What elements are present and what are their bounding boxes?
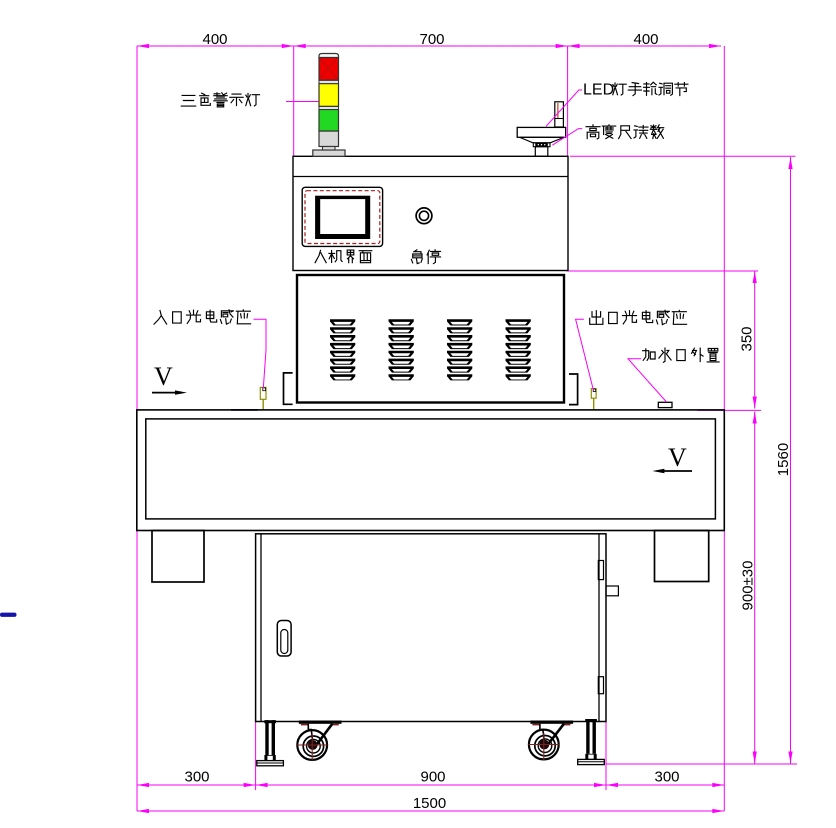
svg-text:300: 300: [654, 769, 679, 786]
svg-text:V: V: [668, 443, 687, 472]
svg-text:1560: 1560: [775, 443, 792, 476]
svg-text:900: 900: [420, 769, 445, 786]
svg-text:1500: 1500: [413, 795, 446, 812]
svg-text:700: 700: [419, 31, 444, 48]
svg-text:LED: LED: [583, 82, 614, 99]
svg-text:400: 400: [202, 31, 227, 48]
svg-text:400: 400: [633, 31, 658, 48]
svg-text:V: V: [154, 362, 173, 391]
svg-text:900±30: 900±30: [739, 561, 756, 611]
svg-text:350: 350: [739, 326, 756, 351]
svg-text:300: 300: [184, 769, 209, 786]
